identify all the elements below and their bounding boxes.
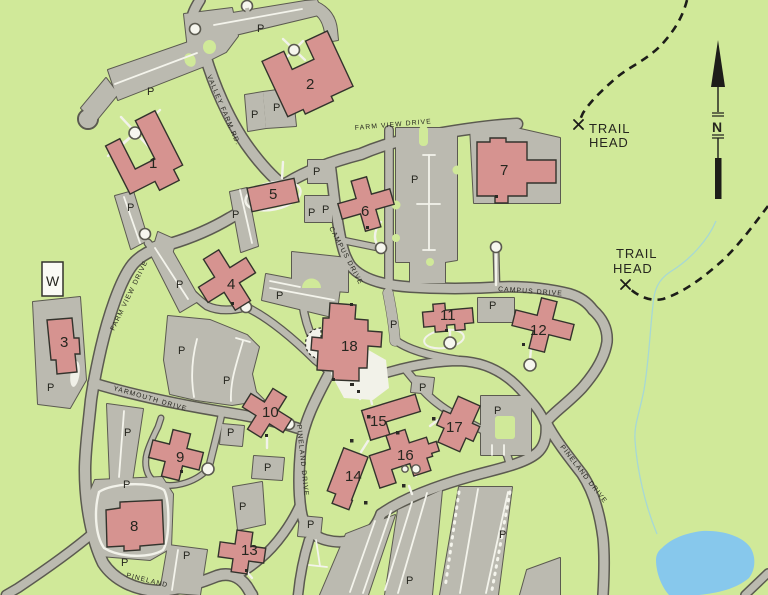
svg-text:P: P [494, 405, 501, 417]
svg-text:16: 16 [397, 447, 414, 464]
svg-text:N: N [712, 119, 722, 135]
svg-text:TRAIL: TRAIL [616, 246, 657, 261]
svg-text:P: P [251, 109, 258, 121]
svg-text:P: P [419, 382, 426, 394]
svg-text:P: P [47, 382, 54, 394]
svg-text:P: P [121, 557, 128, 569]
svg-text:P: P [178, 345, 185, 357]
svg-text:18: 18 [341, 338, 358, 355]
svg-text:10: 10 [262, 404, 279, 421]
svg-text:P: P [127, 202, 134, 214]
svg-text:P: P [147, 86, 154, 98]
svg-text:P: P [273, 102, 280, 114]
svg-text:P: P [322, 204, 329, 216]
svg-text:P: P [276, 290, 283, 302]
svg-text:P: P [307, 519, 314, 531]
svg-text:6: 6 [361, 203, 369, 220]
svg-text:12: 12 [530, 322, 547, 339]
svg-text:1: 1 [149, 155, 157, 172]
svg-text:HEAD: HEAD [613, 261, 653, 276]
svg-text:14: 14 [345, 468, 362, 485]
svg-text:TRAIL: TRAIL [589, 121, 630, 136]
svg-text:P: P [239, 501, 246, 513]
svg-text:W: W [46, 273, 60, 289]
svg-text:P: P [124, 427, 131, 439]
svg-text:P: P [406, 575, 413, 587]
svg-text:7: 7 [500, 162, 508, 179]
svg-text:15: 15 [370, 413, 387, 430]
svg-text:P: P [257, 23, 264, 35]
svg-text:5: 5 [269, 186, 277, 203]
svg-text:11: 11 [440, 307, 456, 324]
svg-text:P: P [499, 529, 506, 541]
svg-text:HEAD: HEAD [589, 135, 629, 150]
svg-text:P: P [227, 427, 234, 439]
svg-text:P: P [411, 174, 418, 186]
svg-text:2: 2 [306, 76, 314, 93]
svg-text:P: P [176, 279, 183, 291]
svg-text:13: 13 [241, 542, 258, 559]
svg-text:17: 17 [446, 419, 463, 436]
svg-text:P: P [313, 166, 320, 178]
svg-text:P: P [223, 375, 230, 387]
svg-text:P: P [183, 550, 190, 562]
svg-text:P: P [308, 207, 315, 219]
svg-text:8: 8 [130, 518, 138, 535]
svg-text:P: P [489, 300, 496, 312]
svg-text:P: P [390, 319, 397, 331]
svg-text:P: P [264, 462, 271, 474]
svg-text:9: 9 [176, 449, 184, 466]
svg-text:P: P [123, 479, 130, 491]
svg-text:4: 4 [227, 276, 235, 293]
svg-text:P: P [232, 209, 239, 221]
svg-text:3: 3 [60, 334, 68, 351]
